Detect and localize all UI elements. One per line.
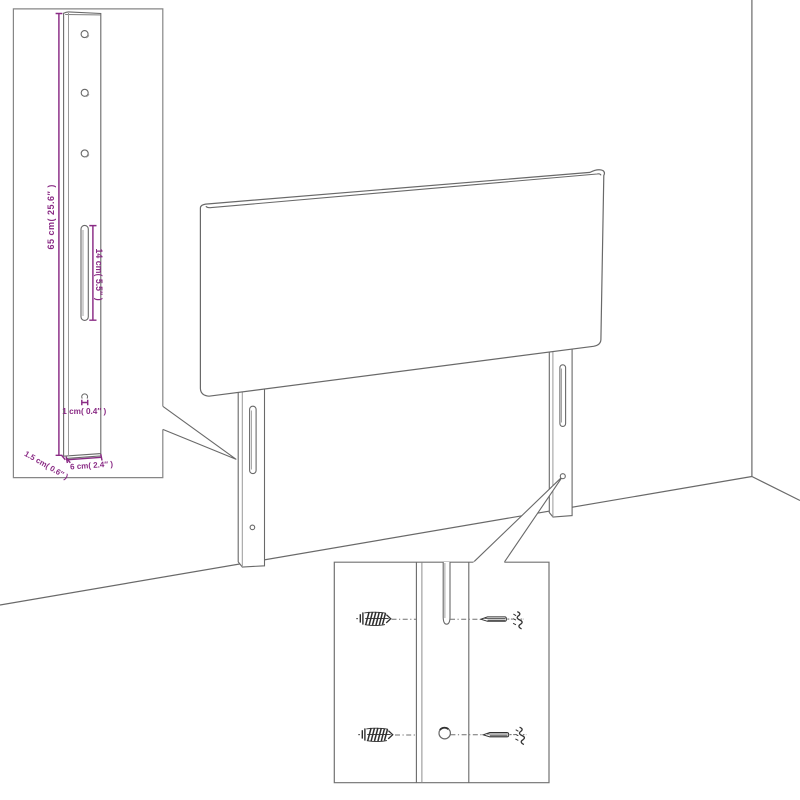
svg-text:1 cm( 0.4″ ): 1 cm( 0.4″ ) [62,407,106,416]
svg-text:65 cm( 25.6″ ): 65 cm( 25.6″ ) [46,184,56,249]
svg-text:14 cm( 5.5″ ): 14 cm( 5.5″ ) [94,249,104,301]
